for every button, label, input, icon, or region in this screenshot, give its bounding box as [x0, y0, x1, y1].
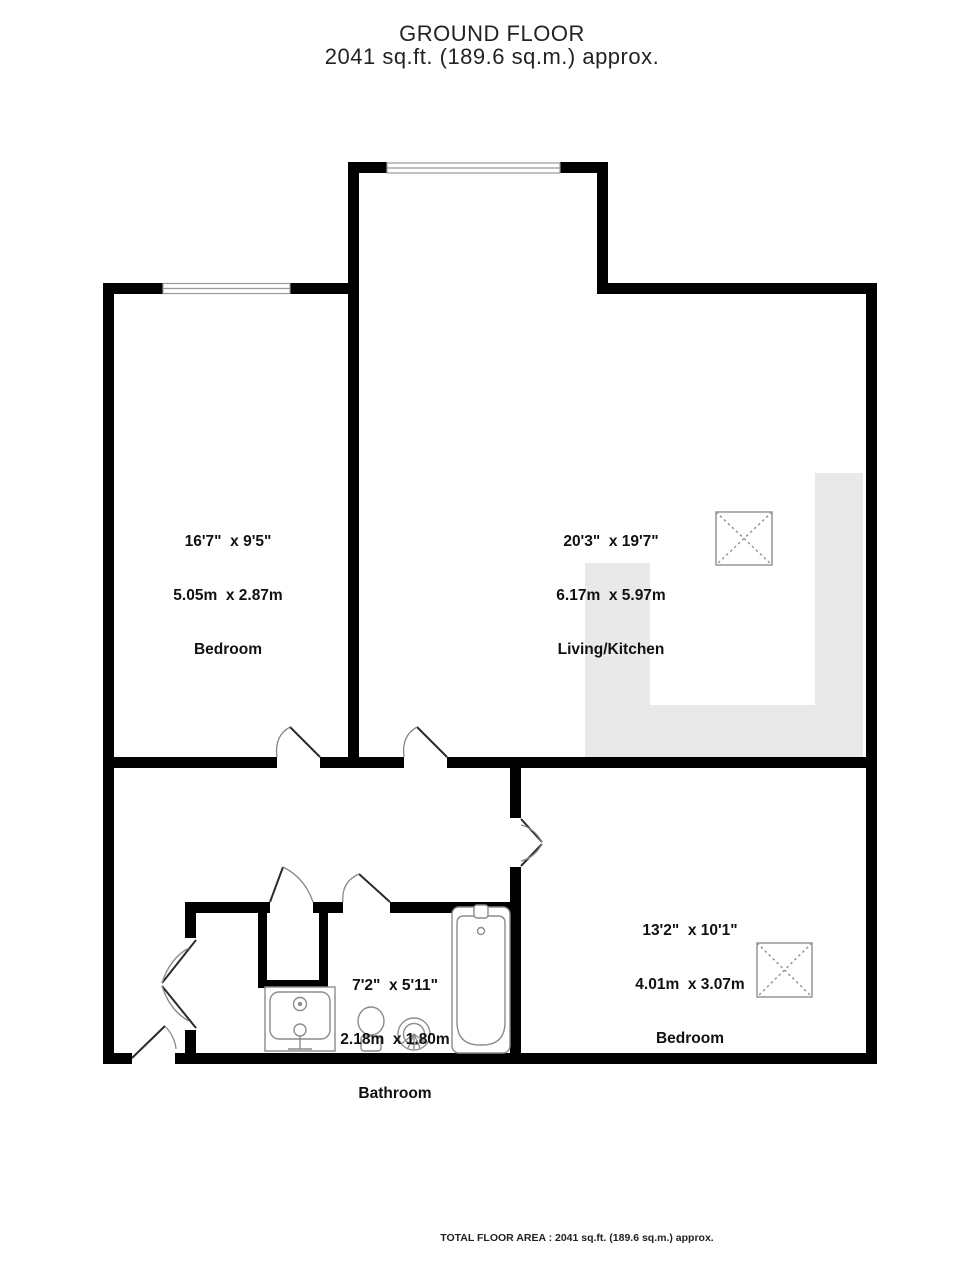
wall-closet-left	[258, 902, 267, 988]
room-dims-imperial: 7'2" x 5'11"	[340, 977, 449, 995]
double-door-icon-hall-cupboard	[162, 940, 196, 1028]
wall-alcove-top	[185, 902, 196, 938]
room-name: Living/Kitchen	[556, 641, 665, 659]
room-dims-metric: 4.01m x 3.07m	[635, 976, 744, 994]
wall-mid-b	[320, 757, 404, 768]
wall-alcove-bottom	[185, 1030, 196, 1064]
wall-bay-right	[597, 162, 608, 294]
wall-bottom-main	[175, 1053, 877, 1064]
room-dims-metric: 2.18m x 1.80m	[340, 1031, 449, 1049]
room-label-bathroom: 7'2" x 5'11" 2.18m x 1.80m Bathroom	[340, 941, 449, 1139]
footer-block: TOTAL FLOOR AREA : 2041 sq.ft. (189.6 sq…	[440, 1196, 713, 1277]
wall-left-outer	[103, 283, 114, 1064]
room-name: Bedroom	[173, 641, 282, 659]
double-door-icon-bedroom2	[521, 819, 542, 866]
room-label-bedroom2: 13'2" x 10'1" 4.01m x 3.07m Bedroom	[635, 886, 744, 1084]
wall-right-outer	[866, 283, 877, 1064]
windows	[163, 163, 560, 294]
room-label-living-kitchen: 20'3" x 19'7" 6.17m x 5.97m Living/Kitch…	[556, 497, 665, 695]
room-dims-imperial: 16'7" x 9'5"	[173, 533, 282, 551]
window-icon-bedroom1	[163, 284, 290, 294]
room-label-bedroom1: 16'7" x 9'5" 5.05m x 2.87m Bedroom	[173, 497, 282, 695]
wall-bath-top-a	[185, 902, 270, 913]
wall-mid-a	[103, 757, 277, 768]
floorplan-page: GROUND FLOOR 2041 sq.ft. (189.6 sq.m.) a…	[0, 0, 980, 1277]
sink-icon	[265, 987, 335, 1051]
skylight-icon-bedroom2	[757, 943, 812, 997]
room-dims-imperial: 13'2" x 10'1"	[635, 922, 744, 940]
room-dims-metric: 6.17m x 5.97m	[556, 587, 665, 605]
door-swing-icon-closet	[270, 867, 313, 902]
room-dims-imperial: 20'3" x 19'7"	[556, 533, 665, 551]
wall-closet-right	[319, 902, 328, 988]
wall-bottom-left	[103, 1053, 132, 1064]
wall-bed2-divider-top	[510, 757, 521, 818]
wall-top-right	[597, 283, 877, 294]
window-icon-living	[387, 163, 560, 173]
wall-bedroom1-living-divider	[348, 162, 359, 768]
door-swing-icon-entrance	[132, 1026, 176, 1058]
room-name: Bedroom	[635, 1030, 744, 1048]
wall-bed2-divider-bottom	[510, 867, 521, 1064]
bathtub-icon	[452, 905, 510, 1053]
door-swing-icon-bathroom	[343, 874, 390, 902]
room-name: Bathroom	[340, 1085, 449, 1103]
skylight-icon-living	[716, 512, 772, 565]
room-dims-metric: 5.05m x 2.87m	[173, 587, 282, 605]
floor-plan-canvas	[0, 0, 980, 1277]
total-floor-area: TOTAL FLOOR AREA : 2041 sq.ft. (189.6 sq…	[440, 1232, 713, 1245]
door-swing-icon-living	[404, 727, 447, 757]
door-swing-icon-bedroom1	[277, 727, 320, 757]
wall-top-left-a	[103, 283, 163, 294]
